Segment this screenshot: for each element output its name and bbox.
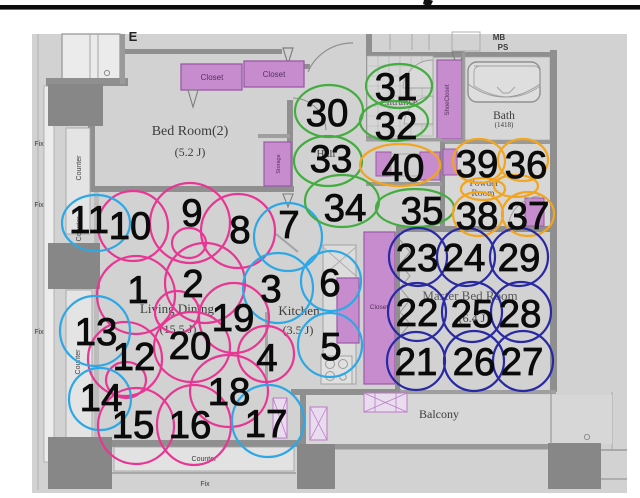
svg-text:5: 5 — [320, 326, 341, 369]
svg-text:37: 37 — [507, 195, 550, 238]
svg-text:3: 3 — [260, 268, 281, 311]
svg-text:Fix: Fix — [34, 202, 44, 209]
svg-text:(1418): (1418) — [495, 121, 514, 129]
svg-text:11: 11 — [69, 199, 109, 242]
svg-text:15: 15 — [112, 404, 155, 447]
svg-text:6: 6 — [319, 262, 340, 305]
svg-text:21: 21 — [395, 341, 438, 384]
svg-text:31: 31 — [375, 66, 418, 109]
svg-text:Balcony: Balcony — [419, 407, 459, 421]
svg-text:16: 16 — [169, 404, 212, 447]
svg-text:Storage: Storage — [276, 154, 282, 173]
svg-text:13: 13 — [75, 311, 118, 354]
svg-text:25: 25 — [451, 293, 494, 336]
svg-text:8: 8 — [229, 209, 250, 252]
svg-text:Closet: Closet — [263, 70, 286, 79]
svg-text:7: 7 — [278, 204, 299, 247]
svg-text:38: 38 — [456, 195, 499, 238]
svg-text:26: 26 — [453, 341, 496, 384]
svg-text:Counter: Counter — [76, 155, 83, 181]
svg-text:12: 12 — [113, 336, 156, 379]
svg-text:27: 27 — [501, 341, 544, 384]
svg-text:Closet: Closet — [201, 73, 224, 82]
svg-text:ShoeCloset: ShoeCloset — [445, 84, 451, 115]
svg-text:34: 34 — [324, 187, 367, 230]
svg-text:10: 10 — [109, 205, 152, 248]
svg-text:Fix: Fix — [200, 481, 210, 488]
svg-text:22: 22 — [396, 292, 439, 335]
svg-text:17: 17 — [245, 403, 288, 446]
svg-text:40: 40 — [382, 147, 425, 190]
svg-text:9: 9 — [181, 192, 202, 235]
svg-text:28: 28 — [499, 293, 542, 336]
svg-text:MB: MB — [493, 33, 506, 42]
svg-text:Fix: Fix — [34, 141, 44, 148]
svg-text:Fix: Fix — [34, 329, 44, 336]
svg-text:Bed Room(2): Bed Room(2) — [152, 124, 229, 139]
svg-text:E: E — [129, 29, 138, 44]
svg-text:35: 35 — [401, 190, 444, 233]
svg-text:Closet: Closet — [370, 304, 389, 311]
svg-text:4: 4 — [256, 337, 277, 380]
svg-text:19: 19 — [212, 297, 255, 340]
svg-text:33: 33 — [310, 138, 353, 181]
svg-text:30: 30 — [306, 92, 349, 135]
svg-text:PS: PS — [498, 43, 509, 52]
svg-text:23: 23 — [396, 237, 439, 280]
svg-text:1: 1 — [127, 269, 148, 312]
svg-text:(5.2 J): (5.2 J) — [175, 145, 206, 159]
svg-text:18: 18 — [208, 371, 251, 414]
svg-text:39: 39 — [456, 143, 499, 186]
svg-text:20: 20 — [169, 325, 212, 368]
svg-text:2: 2 — [182, 263, 203, 306]
svg-text:29: 29 — [498, 237, 541, 280]
svg-text:36: 36 — [505, 144, 548, 187]
svg-text:32: 32 — [375, 105, 418, 148]
svg-text:24: 24 — [443, 237, 486, 280]
